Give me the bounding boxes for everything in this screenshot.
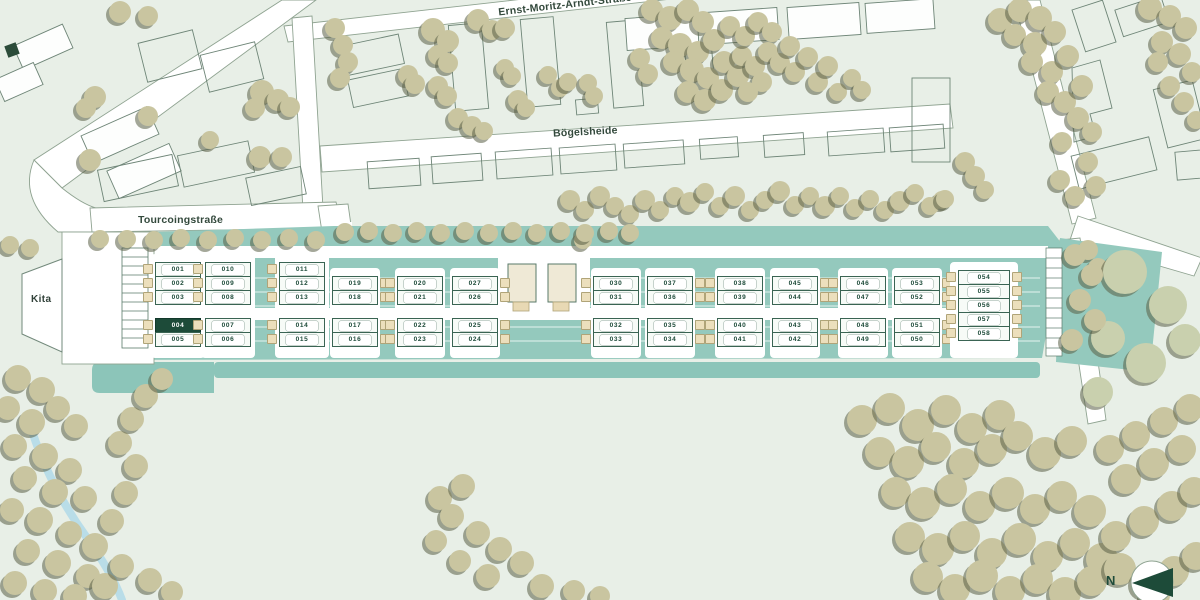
- garage-icon: [143, 292, 153, 302]
- garage-icon: [267, 292, 277, 302]
- plot-number-badge: 035: [654, 321, 686, 331]
- plot-unit-057[interactable]: 057: [958, 312, 1010, 327]
- garage-icon: [828, 320, 838, 330]
- plot-number-badge: 056: [968, 301, 1000, 311]
- plot-number-badge: 052: [901, 293, 933, 303]
- plot-number-badge: 005: [162, 335, 194, 345]
- garage-icon: [193, 320, 203, 330]
- garage-icon: [695, 320, 705, 330]
- plot-number-badge: 039: [724, 293, 756, 303]
- plot-number-badge: 057: [968, 315, 1000, 325]
- plot-number-badge: 054: [968, 273, 1000, 283]
- plot-number-badge: 031: [600, 293, 632, 303]
- garage-icon: [581, 292, 591, 302]
- garage-icon: [695, 292, 705, 302]
- garage-icon: [828, 292, 838, 302]
- garage-icon: [946, 328, 956, 338]
- garage-icon: [705, 292, 715, 302]
- garage-icon: [385, 278, 395, 288]
- kita-label: Kita: [31, 294, 52, 305]
- hedge-band: [92, 362, 1040, 393]
- plot-number-badge: 025: [459, 321, 491, 331]
- garage-icon: [581, 320, 591, 330]
- plot-number-badge: 032: [600, 321, 632, 331]
- plot-unit-023[interactable]: 023: [397, 332, 443, 347]
- plot-number-badge: 048: [847, 321, 879, 331]
- garage-icon: [705, 334, 715, 344]
- garage-icon: [385, 292, 395, 302]
- plot-unit-009[interactable]: 009: [205, 276, 251, 291]
- plot-number-badge: 046: [847, 279, 879, 289]
- plot-number-badge: 044: [779, 293, 811, 303]
- compass-n-label: N: [1106, 573, 1116, 588]
- plot-unit-032[interactable]: 032: [593, 318, 639, 333]
- plot-unit-046[interactable]: 046: [840, 276, 886, 291]
- plot-number-badge: 034: [654, 335, 686, 345]
- plot-unit-051[interactable]: 051: [894, 318, 940, 333]
- garage-icon: [267, 278, 277, 288]
- plot-number-badge: 021: [404, 293, 436, 303]
- garage-icon: [143, 264, 153, 274]
- garage-icon: [267, 334, 277, 344]
- garage-icon: [695, 278, 705, 288]
- plot-number-badge: 058: [968, 329, 1000, 339]
- plot-unit-016[interactable]: 016: [332, 332, 378, 347]
- plot-unit-012[interactable]: 012: [279, 276, 325, 291]
- plot-number-badge: 016: [339, 335, 371, 345]
- plot-unit-043[interactable]: 043: [772, 318, 818, 333]
- plot-number-badge: 008: [212, 293, 244, 303]
- plot-number-badge: 051: [901, 321, 933, 331]
- plot-number-badge: 023: [404, 335, 436, 345]
- plot-number-badge: 043: [779, 321, 811, 331]
- plot-unit-033[interactable]: 033: [593, 332, 639, 347]
- plot-number-badge: 041: [724, 335, 756, 345]
- plot-number-badge: 037: [654, 279, 686, 289]
- plot-number-badge: 011: [286, 265, 318, 275]
- garage-icon: [385, 320, 395, 330]
- plot-unit-049[interactable]: 049: [840, 332, 886, 347]
- garage-icon: [705, 320, 715, 330]
- plot-unit-036[interactable]: 036: [647, 290, 693, 305]
- plot-number-badge: 033: [600, 335, 632, 345]
- garage-icon: [828, 278, 838, 288]
- plot-number-badge: 006: [212, 335, 244, 345]
- plot-unit-006[interactable]: 006: [205, 332, 251, 347]
- plot-unit-056[interactable]: 056: [958, 298, 1010, 313]
- plot-number-badge: 012: [286, 279, 318, 289]
- plot-number-badge: 013: [286, 293, 318, 303]
- plot-number-badge: 026: [459, 293, 491, 303]
- plot-number-badge: 020: [404, 279, 436, 289]
- plot-unit-025[interactable]: 025: [452, 318, 498, 333]
- plot-unit-045[interactable]: 045: [772, 276, 818, 291]
- garage-icon: [946, 300, 956, 310]
- plot-number-badge: 049: [847, 335, 879, 345]
- plot-unit-008[interactable]: 008: [205, 290, 251, 305]
- plot-unit-034[interactable]: 034: [647, 332, 693, 347]
- plot-number-badge: 004: [162, 321, 194, 331]
- plot-number-badge: 007: [212, 321, 244, 331]
- plot-unit-041[interactable]: 041: [717, 332, 763, 347]
- garage-icon: [581, 278, 591, 288]
- garage-icon: [500, 292, 510, 302]
- plot-unit-055[interactable]: 055: [958, 284, 1010, 299]
- plot-number-badge: 018: [339, 293, 371, 303]
- plot-number-badge: 002: [162, 279, 194, 289]
- north-arrow-icon: [1131, 561, 1173, 600]
- plot-number-badge: 050: [901, 335, 933, 345]
- garage-icon: [1012, 300, 1022, 310]
- garage-icon: [1012, 286, 1022, 296]
- street-label-tourcoingstrasse: Tourcoingstraße: [138, 214, 223, 226]
- plot-number-badge: 014: [286, 321, 318, 331]
- plot-unit-048[interactable]: 048: [840, 318, 886, 333]
- plot-unit-011[interactable]: 011: [279, 262, 325, 277]
- plot-number-badge: 040: [724, 321, 756, 331]
- plot-number-badge: 015: [286, 335, 318, 345]
- garage-icon: [193, 278, 203, 288]
- plot-number-badge: 036: [654, 293, 686, 303]
- garage-icon: [385, 334, 395, 344]
- plot-unit-044[interactable]: 044: [772, 290, 818, 305]
- plot-unit-042[interactable]: 042: [772, 332, 818, 347]
- plot-number-badge: 024: [459, 335, 491, 345]
- kita-building: [22, 259, 62, 352]
- plot-unit-052[interactable]: 052: [894, 290, 940, 305]
- plot-unit-019[interactable]: 019: [332, 276, 378, 291]
- garage-icon: [946, 286, 956, 296]
- parking-area: [62, 232, 154, 364]
- garage-icon: [500, 320, 510, 330]
- central-buildings: [498, 246, 590, 311]
- plot-number-badge: 022: [404, 321, 436, 331]
- plot-number-badge: 055: [968, 287, 1000, 297]
- plot-unit-021[interactable]: 021: [397, 290, 443, 305]
- plot-unit-024[interactable]: 024: [452, 332, 498, 347]
- plot-number-badge: 047: [847, 293, 879, 303]
- garage-icon: [946, 314, 956, 324]
- garage-icon: [946, 272, 956, 282]
- plot-number-badge: 009: [212, 279, 244, 289]
- garage-icon: [695, 334, 705, 344]
- plot-unit-010[interactable]: 010: [205, 262, 251, 277]
- plot-unit-027[interactable]: 027: [452, 276, 498, 291]
- plot-unit-031[interactable]: 031: [593, 290, 639, 305]
- plot-unit-058[interactable]: 058: [958, 326, 1010, 341]
- plot-unit-022[interactable]: 022: [397, 318, 443, 333]
- garage-icon: [1012, 328, 1022, 338]
- plot-unit-020[interactable]: 020: [397, 276, 443, 291]
- garage-icon: [1012, 272, 1022, 282]
- plot-number-badge: 010: [212, 265, 244, 275]
- garage-icon: [581, 334, 591, 344]
- plot-number-badge: 038: [724, 279, 756, 289]
- plot-number-badge: 003: [162, 293, 194, 303]
- plot-unit-038[interactable]: 038: [717, 276, 763, 291]
- plot-unit-054[interactable]: 054: [958, 270, 1010, 285]
- garage-icon: [143, 334, 153, 344]
- plot-number-badge: 001: [162, 265, 194, 275]
- plot-unit-007[interactable]: 007: [205, 318, 251, 333]
- plot-number-badge: 019: [339, 279, 371, 289]
- garage-icon: [193, 334, 203, 344]
- garage-icon: [143, 320, 153, 330]
- plot-number-badge: 027: [459, 279, 491, 289]
- plot-unit-035[interactable]: 035: [647, 318, 693, 333]
- plot-unit-030[interactable]: 030: [593, 276, 639, 291]
- plot-unit-053[interactable]: 053: [894, 276, 940, 291]
- plot-unit-017[interactable]: 017: [332, 318, 378, 333]
- garage-icon: [267, 320, 277, 330]
- plot-number-badge: 045: [779, 279, 811, 289]
- garage-icon: [828, 334, 838, 344]
- garage-icon: [500, 278, 510, 288]
- garage-icon: [705, 278, 715, 288]
- plot-unit-014[interactable]: 014: [279, 318, 325, 333]
- garage-icon: [193, 292, 203, 302]
- garage-icon: [267, 264, 277, 274]
- plot-unit-047[interactable]: 047: [840, 290, 886, 305]
- site-plan-map: Ernst-Moritz-Arndt-Straße Bögelsheide To…: [0, 0, 1200, 600]
- plot-unit-050[interactable]: 050: [894, 332, 940, 347]
- plot-number-badge: 017: [339, 321, 371, 331]
- plot-number-badge: 030: [600, 279, 632, 289]
- garage-icon: [143, 278, 153, 288]
- plot-unit-015[interactable]: 015: [279, 332, 325, 347]
- plot-unit-013[interactable]: 013: [279, 290, 325, 305]
- garage-icon: [500, 334, 510, 344]
- garage-icon: [1012, 314, 1022, 324]
- plot-number-badge: 042: [779, 335, 811, 345]
- plot-unit-037[interactable]: 037: [647, 276, 693, 291]
- garage-icon: [193, 264, 203, 274]
- plot-unit-026[interactable]: 026: [452, 290, 498, 305]
- plot-number-badge: 053: [901, 279, 933, 289]
- plot-unit-039[interactable]: 039: [717, 290, 763, 305]
- plot-unit-040[interactable]: 040: [717, 318, 763, 333]
- plot-unit-018[interactable]: 018: [332, 290, 378, 305]
